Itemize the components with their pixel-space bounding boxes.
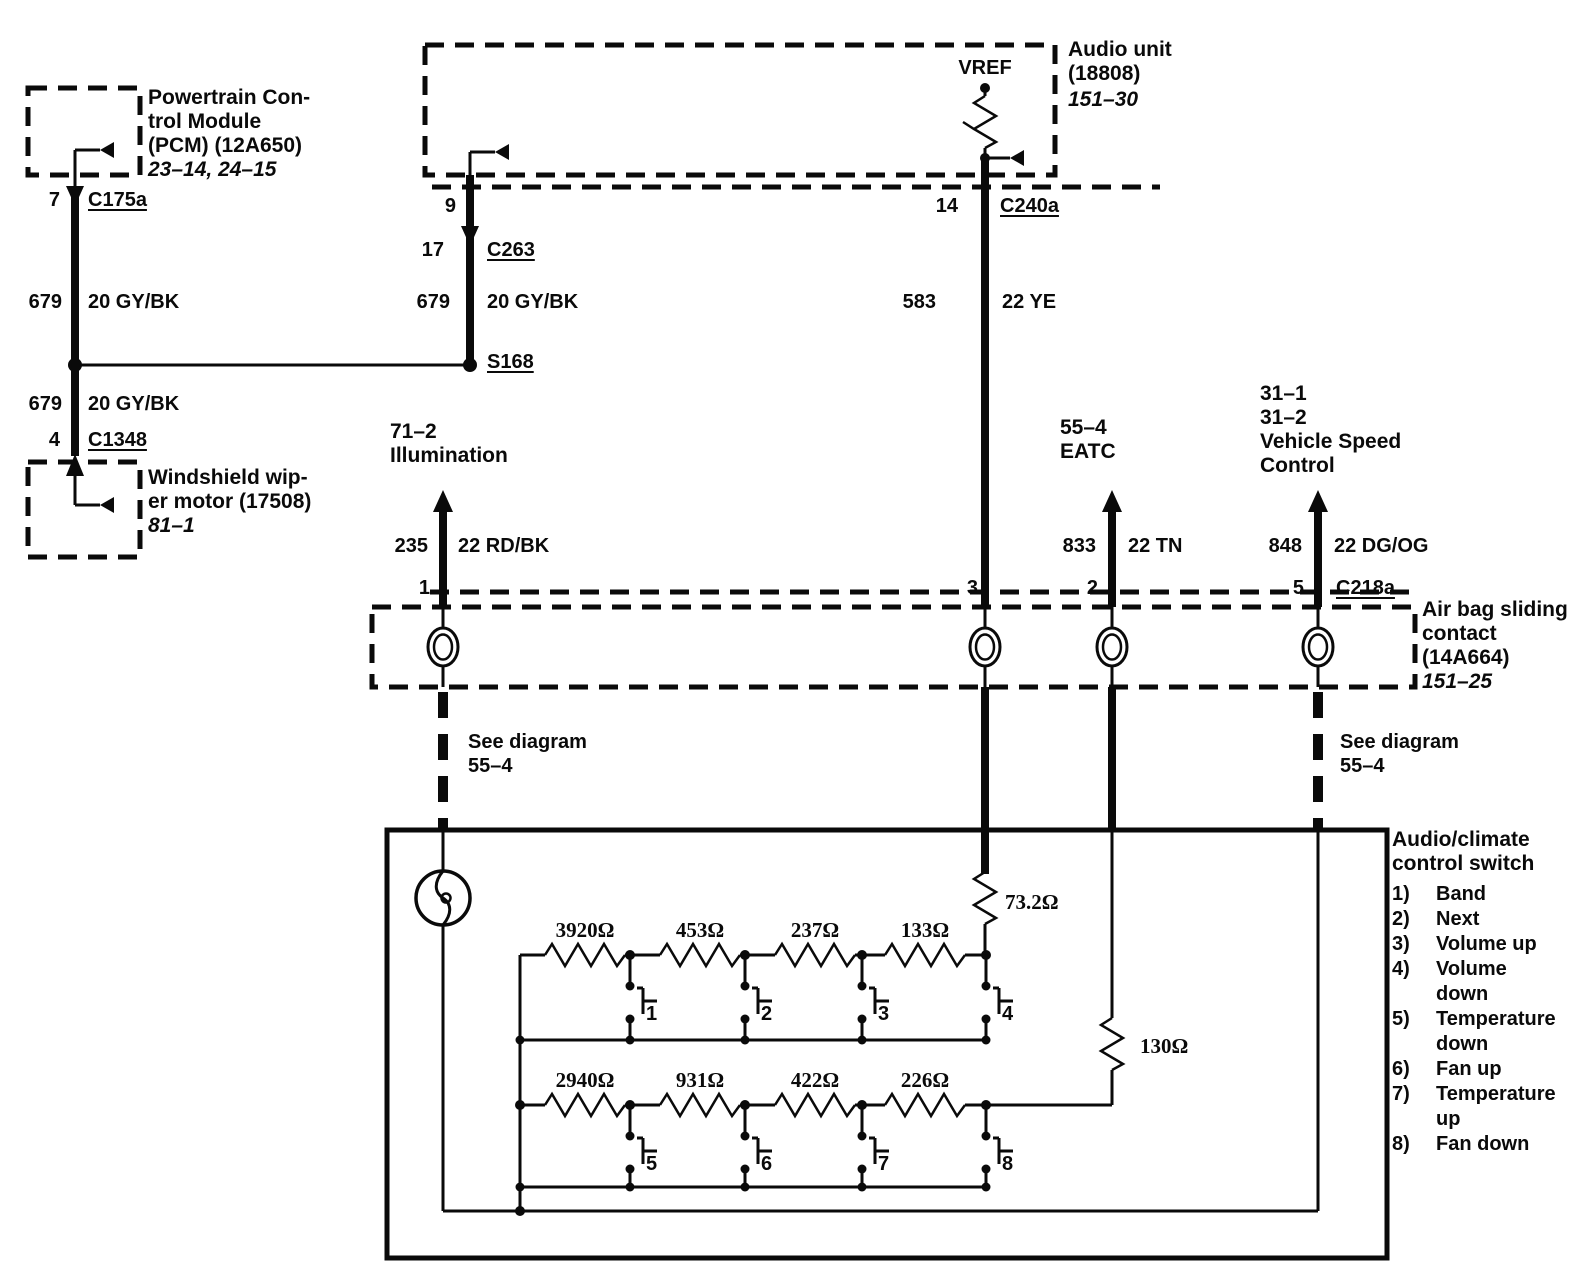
see-diagram-right: See diagram 55–4 <box>1340 730 1459 778</box>
pcm-label: Powertrain Con- trol Module (PCM) (12A65… <box>148 86 310 158</box>
wire-848-gauge: 22 DG/OG <box>1334 534 1428 558</box>
wire-679a-circuit: 679 <box>10 290 62 314</box>
dest-vehicle-speed-control: 31–1 31–2 Vehicle Speed Control <box>1260 382 1401 478</box>
resistor-422ohm <box>775 1094 855 1116</box>
see-diagram-left: See diagram 55–4 <box>468 730 587 778</box>
resistor-931ohm-label: 931Ω <box>645 1068 755 1092</box>
sliding-contact-coils <box>428 628 1333 666</box>
splice-s168: S168 <box>487 350 534 374</box>
legend-item-band: 1)Band <box>1392 882 1486 907</box>
connector-arrows <box>66 142 1328 513</box>
wire-235-gauge: 22 RD/BK <box>458 534 549 558</box>
wire-679a-gauge: 20 GY/BK <box>88 290 179 314</box>
resistor-237ohm-label: 237Ω <box>760 918 870 942</box>
switch-8-number: 8 <box>1002 1152 1013 1176</box>
arrow-down-c263 <box>461 226 479 246</box>
airbag-contact-box <box>372 592 1415 687</box>
wire-235-circuit: 235 <box>376 534 428 558</box>
resistor-130ohm <box>1101 1018 1123 1070</box>
legend-item-temperature-up: 7)Temperature up <box>1392 1082 1556 1132</box>
arrow-up-vsc <box>1308 490 1328 512</box>
resistor-3920ohm-label: 3920Ω <box>530 918 640 942</box>
entry-arrow-pcm <box>100 142 114 158</box>
wire-583-gauge: 22 YE <box>1002 290 1056 314</box>
wire-833-circuit: 833 <box>1044 534 1096 558</box>
thick-wires <box>75 160 1318 874</box>
connector-c263: C263 <box>487 238 535 262</box>
wiper-ref: 81–1 <box>148 514 195 538</box>
wire-679b-gauge: 20 GY/BK <box>88 392 179 416</box>
legend-item-volume-up: 3)Volume up <box>1392 932 1537 957</box>
c263-pin17: 17 <box>402 238 444 262</box>
thin-wires <box>75 88 1318 1211</box>
airbag-pin3: 3 <box>938 576 978 600</box>
switch-7-number: 7 <box>878 1152 889 1176</box>
airbag-pin1: 1 <box>390 576 430 600</box>
wire-848-circuit: 848 <box>1250 534 1302 558</box>
resistor-453ohm <box>660 944 740 966</box>
resistor-130ohm-label: 130Ω <box>1140 1034 1188 1058</box>
vref-label: VREF <box>933 56 1037 80</box>
pcm-ref: 23–14, 24–15 <box>148 158 276 182</box>
connector-c1348: C1348 <box>88 428 147 452</box>
legend-item-fan-up: 6)Fan up <box>1392 1057 1502 1082</box>
resistor-2940ohm <box>545 1094 625 1116</box>
entry-arrow-audio <box>495 144 509 160</box>
wiper-pin: 4 <box>18 428 60 452</box>
resistor-73ohm-label: 73.2Ω <box>1005 890 1059 914</box>
airbag-label: Air bag sliding contact (14A664) <box>1422 598 1568 670</box>
arrow-up-c1348 <box>66 454 84 476</box>
switch-3-number: 3 <box>878 1002 889 1026</box>
entry-arrow-vref <box>1010 150 1024 166</box>
resistor-453ohm-label: 453Ω <box>645 918 755 942</box>
resistor-226ohm-label: 226Ω <box>870 1068 980 1092</box>
wire-833-gauge: 22 TN <box>1128 534 1182 558</box>
dest-illumination: 71–2 Illumination <box>390 420 508 468</box>
audio-unit-box <box>425 45 1160 187</box>
dest-eatc: 55–4 EATC <box>1060 416 1116 464</box>
legend-item-fan-down: 8)Fan down <box>1392 1132 1529 1157</box>
legend-item-volume-down: 4)Volume down <box>1392 957 1507 1007</box>
audio-climate-switch-box <box>387 830 1387 1258</box>
switch-2-number: 2 <box>761 1002 772 1026</box>
legend-item-temperature-down: 5)Temperature down <box>1392 1007 1556 1057</box>
wire-679b-circuit: 679 <box>10 392 62 416</box>
audio-unit-ref: 151–30 <box>1068 88 1138 112</box>
audio-pin14: 14 <box>916 194 958 218</box>
connector-c240a: C240a <box>1000 194 1059 218</box>
resistor-422ohm-label: 422Ω <box>760 1068 870 1092</box>
wire-679c-gauge: 20 GY/BK <box>487 290 578 314</box>
wiper-label: Windshield wip- er motor (17508) <box>148 466 311 514</box>
entry-arrow-wiper <box>100 497 114 513</box>
wire-583-circuit: 583 <box>884 290 936 314</box>
switch-panel-title: Audio/climate control switch <box>1392 828 1534 876</box>
connector-c175a: C175a <box>88 188 147 212</box>
switch-5-number: 5 <box>646 1152 657 1176</box>
resistor-2940ohm-label: 2940Ω <box>530 1068 640 1092</box>
resistor-237ohm <box>775 944 855 966</box>
switch-1-number: 1 <box>646 1002 657 1026</box>
illumination-lamp-icon <box>416 871 470 925</box>
connector-c218a: C218a <box>1336 576 1395 600</box>
arrow-up-eatc <box>1102 490 1122 512</box>
legend-item-next: 2)Next <box>1392 907 1479 932</box>
wiring-diagram-page: Powertrain Con- trol Module (PCM) (12A65… <box>0 0 1580 1280</box>
pcm-pin: 7 <box>18 188 60 212</box>
switch-6-number: 6 <box>761 1152 772 1176</box>
wire-679c-circuit: 679 <box>398 290 450 314</box>
airbag-ref: 151–25 <box>1422 670 1492 694</box>
resistor-73ohm <box>974 872 996 924</box>
airbag-pin5: 5 <box>1264 576 1304 600</box>
resistor-931ohm <box>660 1094 740 1116</box>
arrow-down-c175a <box>66 186 84 206</box>
audio-unit-label: Audio unit (18808) <box>1068 38 1172 86</box>
switch-4-number: 4 <box>1002 1002 1013 1026</box>
audio-pin9: 9 <box>414 194 456 218</box>
resistor-3920ohm <box>545 944 625 966</box>
resistor-133ohm <box>885 944 965 966</box>
wiper-motor-box <box>28 462 140 557</box>
arrow-up-illumination <box>433 490 453 512</box>
resistor-226ohm <box>885 1094 965 1116</box>
resistor-133ohm-label: 133Ω <box>870 918 980 942</box>
vref-resistor <box>963 96 996 148</box>
airbag-pin2: 2 <box>1058 576 1098 600</box>
pcm-box <box>28 88 140 175</box>
